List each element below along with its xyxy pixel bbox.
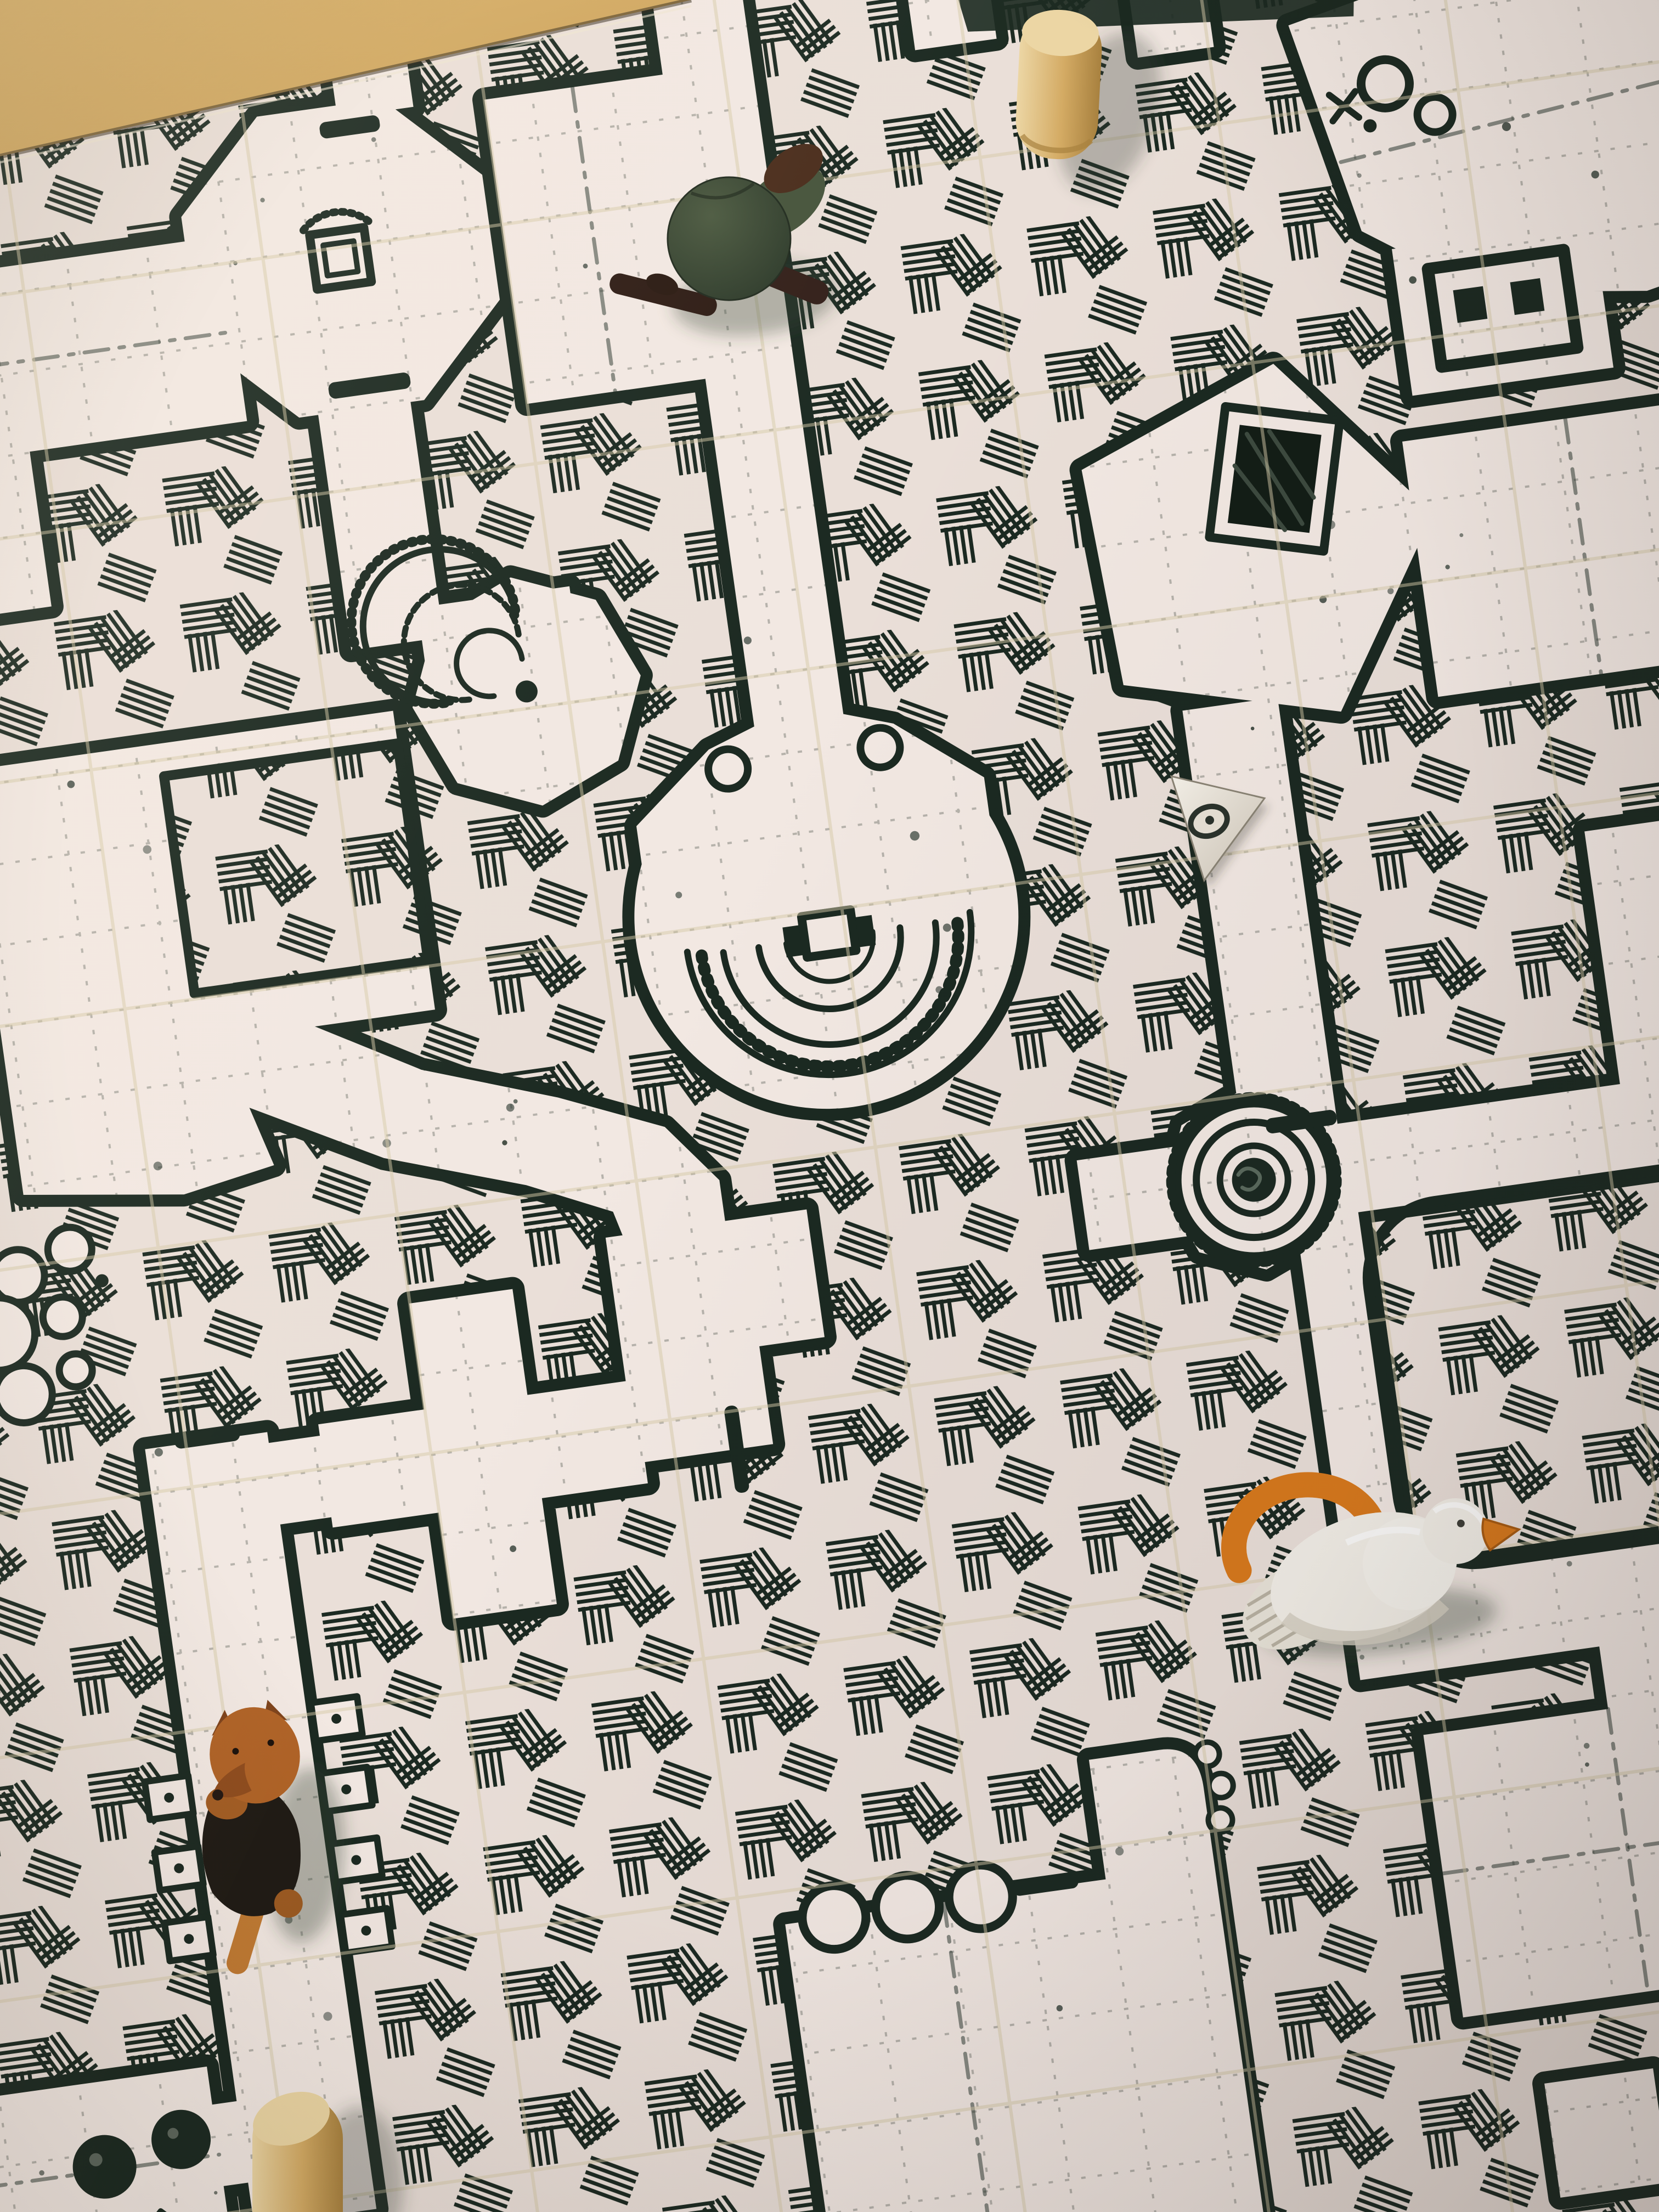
rock-pillar-block bbox=[164, 743, 428, 994]
tabletop-photo bbox=[0, 0, 1659, 2212]
